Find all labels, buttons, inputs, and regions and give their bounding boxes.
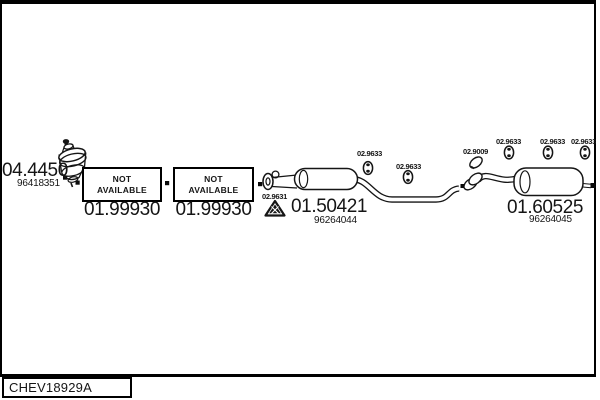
not-available-line2: AVAILABLE [97,185,147,195]
centre-silencer-oem-number: 96264044 [314,216,357,226]
front-pipe-right-part-number: 01.99930 [171,200,256,219]
hanger-part-number: 02.9633 [540,138,565,146]
hanger-ring-icon [580,146,589,159]
centre-silencer-drawing [295,169,358,190]
centre-silencer-part-number: 01.50421 [291,197,367,216]
not-available-line1: NOT [204,174,223,184]
not-available-box-right: NOT AVAILABLE [173,167,254,202]
hanger-ring-icon [363,162,372,175]
exhaust-parts-diagram: 04.4450 96418351 NOT AVAILABLE 01.99930 … [0,0,600,400]
gasket-part-number: 02.9631 [262,193,287,201]
front-pipe-left-part-number: 01.99930 [80,200,164,219]
gasket-triangle-icon [266,201,285,216]
clamp-ring-icon [468,155,484,171]
diagram-code-plate: CHEV18929A [2,377,132,398]
flange-to-centre-pipe [272,175,297,188]
catalyst-oem-number: 96418351 [17,179,60,189]
not-available-box-left: NOT AVAILABLE [82,167,162,202]
not-available-line1: NOT [113,174,132,184]
hanger-ring-icon [403,171,412,184]
hanger-part-number: 02.9633 [571,138,596,146]
hanger-ring-icon [543,146,552,159]
hanger-part-number: 02.9633 [496,138,521,146]
rear-silencer-drawing [514,168,583,196]
rear-silencer-oem-number: 96264045 [529,215,572,225]
hanger-part-number: 02.9633 [357,150,382,158]
hanger-part-number: 02.9633 [396,163,421,171]
not-available-line2: AVAILABLE [188,185,238,195]
diagram-code: CHEV18929A [9,380,92,395]
hanger-ring-icon [504,146,513,159]
clamp-part-number: 02.9009 [463,148,488,156]
